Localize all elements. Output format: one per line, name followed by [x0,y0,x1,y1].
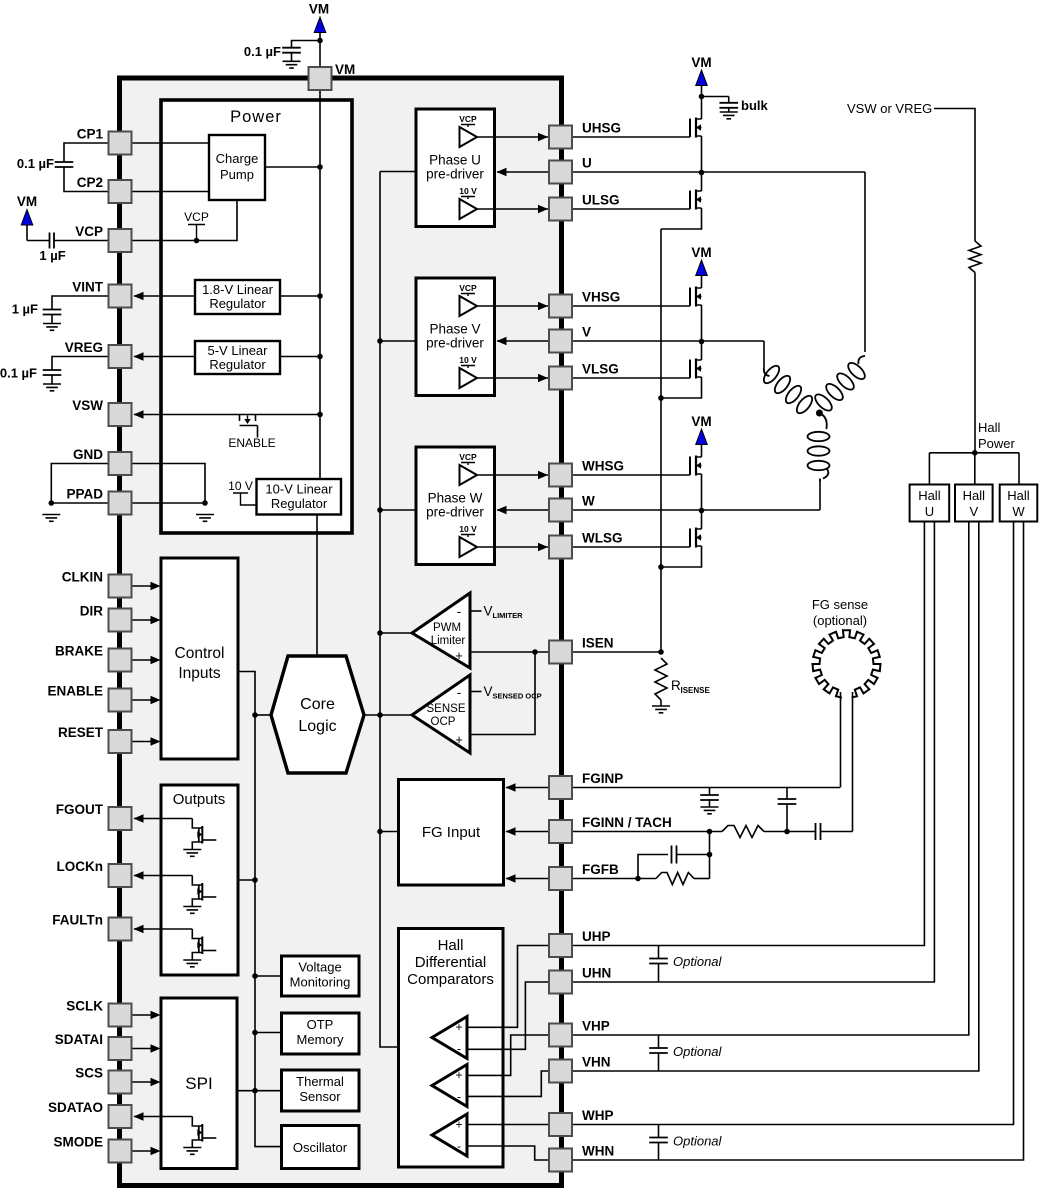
svg-text:Phase U: Phase U [429,153,481,168]
svg-text:10 V: 10 V [459,186,477,196]
svg-text:0.1 µF: 0.1 µF [17,156,54,171]
svg-text:CP2: CP2 [77,175,103,190]
svg-text:WHN: WHN [582,1144,614,1159]
svg-text:FGINP: FGINP [582,771,623,786]
svg-text:Optional: Optional [673,954,723,969]
svg-text:VM: VM [691,245,711,260]
svg-text:(optional): (optional) [813,613,867,628]
svg-text:Charge: Charge [216,151,259,166]
svg-text:VCP: VCP [75,224,103,239]
svg-text:-: - [457,1139,461,1153]
svg-text:VLSG: VLSG [582,362,619,377]
svg-text:Outputs: Outputs [173,791,226,808]
svg-text:10 V: 10 V [459,524,477,534]
svg-text:5-V Linear: 5-V Linear [208,343,269,358]
svg-text:FG Input: FG Input [422,824,481,841]
svg-text:Differential: Differential [415,954,486,971]
svg-text:SENSE: SENSE [427,703,466,715]
svg-text:PPAD: PPAD [66,487,103,502]
svg-text:LOCKn: LOCKn [57,859,104,874]
svg-text:Limiter: Limiter [431,635,466,647]
svg-text:W: W [582,494,595,509]
svg-text:Thermal: Thermal [296,1074,344,1089]
svg-text:SDATAO: SDATAO [48,1100,103,1115]
svg-text:ISEN: ISEN [582,636,614,651]
svg-text:FGOUT: FGOUT [56,802,104,817]
svg-text:VHSG: VHSG [582,290,620,305]
svg-text:ISENSE: ISENSE [681,686,711,695]
svg-text:WHP: WHP [582,1108,614,1123]
svg-text:PWM: PWM [433,622,461,634]
svg-text:W: W [1012,504,1025,519]
svg-text:0.1 µF: 0.1 µF [0,366,37,381]
svg-text:10 V: 10 V [459,355,477,365]
svg-text:VCP: VCP [459,114,477,124]
svg-text:ULSG: ULSG [582,193,620,208]
svg-text:V: V [484,684,493,699]
svg-text:SMODE: SMODE [53,1135,103,1150]
svg-text:1.8-V Linear: 1.8-V Linear [202,282,273,297]
svg-text:VM: VM [335,62,355,77]
svg-text:VSW: VSW [72,398,103,413]
svg-text:Voltage: Voltage [298,960,341,975]
svg-text:pre-driver: pre-driver [426,505,484,520]
svg-text:Core: Core [300,696,335,713]
svg-text:VHN: VHN [582,1055,611,1070]
svg-text:V: V [582,325,591,340]
svg-text:RESET: RESET [58,725,104,740]
svg-text:10-V Linear: 10-V Linear [265,482,333,497]
svg-text:+: + [455,732,463,747]
svg-text:VCP: VCP [459,283,477,293]
svg-text:BRAKE: BRAKE [55,644,103,659]
svg-text:Hall: Hall [963,488,986,503]
svg-text:FG sense: FG sense [812,597,868,612]
svg-text:Inputs: Inputs [178,665,220,682]
svg-text:Regulator: Regulator [209,296,266,311]
svg-text:UHSG: UHSG [582,121,621,136]
svg-text:0.1 µF: 0.1 µF [244,44,281,59]
svg-text:1 µF: 1 µF [12,302,38,317]
svg-text:GND: GND [73,447,103,462]
svg-text:VREG: VREG [65,340,103,355]
svg-text:pre-driver: pre-driver [426,336,484,351]
svg-text:UHP: UHP [582,929,611,944]
svg-text:-: - [457,1042,461,1056]
svg-text:Hall: Hall [918,488,941,503]
svg-text:VCP: VCP [184,210,209,224]
svg-text:Monitoring: Monitoring [290,975,351,990]
svg-text:ENABLE: ENABLE [228,436,275,450]
svg-text:SCS: SCS [75,1066,103,1081]
svg-text:+: + [455,1118,462,1132]
svg-text:-: - [457,603,462,619]
svg-text:Logic: Logic [298,718,336,735]
svg-text:Phase W: Phase W [428,491,483,506]
svg-text:FGINN / TACH: FGINN / TACH [582,815,672,830]
svg-text:VINT: VINT [72,280,104,295]
svg-text:FAULTn: FAULTn [52,913,103,928]
svg-text:Hall: Hall [1007,488,1030,503]
svg-text:Regulator: Regulator [271,496,328,511]
svg-text:Power: Power [978,436,1016,451]
svg-text:VM: VM [691,55,711,70]
svg-text:LIMITER: LIMITER [493,611,524,620]
svg-text:-: - [457,1090,461,1104]
svg-text:Memory: Memory [297,1032,344,1047]
svg-text:SCLK: SCLK [66,999,103,1014]
svg-text:OCP: OCP [431,716,456,728]
svg-text:FGFB: FGFB [582,862,619,877]
svg-text:VM: VM [17,194,37,209]
svg-text:V: V [484,604,493,619]
svg-text:Regulator: Regulator [209,357,266,372]
svg-text:R: R [671,678,681,693]
svg-text:SDATAI: SDATAI [55,1032,103,1047]
svg-text:U: U [925,504,934,519]
svg-text:CLKIN: CLKIN [62,570,103,585]
svg-text:VM: VM [309,2,329,17]
svg-text:V: V [969,504,978,519]
svg-text:DIR: DIR [80,604,104,619]
svg-text:Oscillator: Oscillator [293,1140,348,1155]
svg-text:bulk: bulk [741,98,768,113]
svg-text:VSW or VREG: VSW or VREG [847,101,932,116]
svg-text:Sensor: Sensor [299,1089,341,1104]
svg-text:UHN: UHN [582,966,611,981]
svg-text:ENABLE: ENABLE [47,684,103,699]
svg-text:Optional: Optional [673,1044,723,1059]
svg-text:OTP: OTP [307,1017,334,1032]
svg-text:WLSG: WLSG [582,531,623,546]
svg-text:Control: Control [175,645,225,662]
svg-text:Power: Power [230,108,282,126]
svg-text:SPI: SPI [185,1074,212,1093]
svg-text:WHSG: WHSG [582,459,624,474]
svg-text:1 µF: 1 µF [39,248,65,263]
svg-text:Pump: Pump [220,167,254,182]
svg-text:+: + [455,1020,462,1034]
svg-text:Phase V: Phase V [429,322,480,337]
svg-text:Hall: Hall [438,937,464,954]
svg-text:pre-driver: pre-driver [426,167,484,182]
svg-text:VCP: VCP [459,452,477,462]
svg-text:Optional: Optional [673,1134,723,1149]
svg-text:-: - [457,684,462,700]
svg-text:10 V: 10 V [228,479,253,493]
svg-text:+: + [455,1068,462,1082]
svg-text:VM: VM [691,414,711,429]
svg-text:+: + [455,648,463,663]
svg-text:Hall: Hall [978,420,1001,435]
svg-text:CP1: CP1 [77,127,104,142]
svg-text:U: U [582,156,592,171]
svg-text:VHP: VHP [582,1019,610,1034]
svg-text:Comparators: Comparators [407,971,494,988]
